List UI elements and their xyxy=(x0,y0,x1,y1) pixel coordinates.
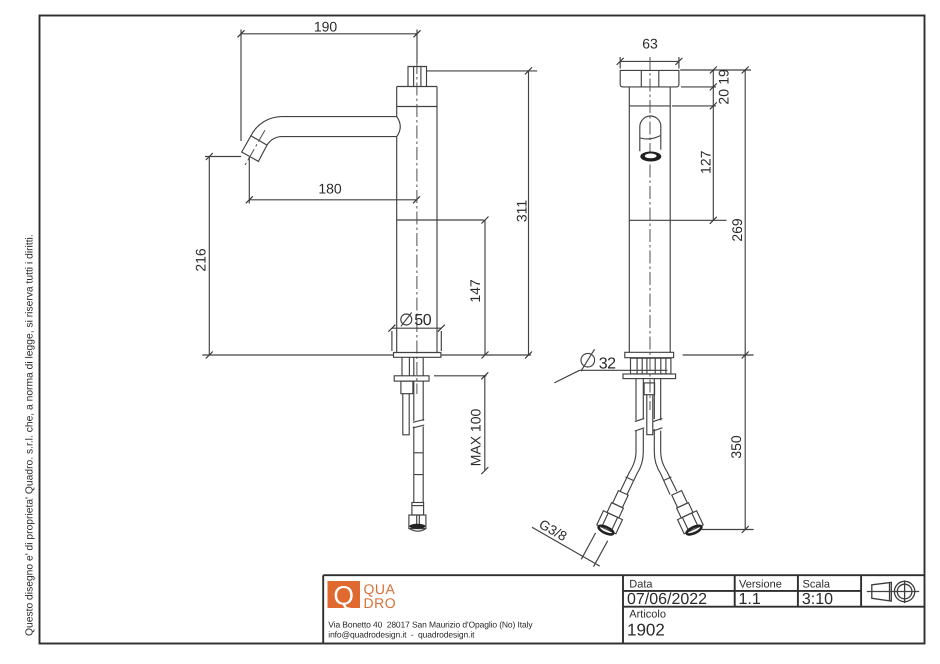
svg-text:147: 147 xyxy=(467,279,483,303)
svg-text:127: 127 xyxy=(697,150,713,174)
svg-text:Articolo: Articolo xyxy=(629,609,666,621)
svg-text:190: 190 xyxy=(314,18,338,34)
svg-text:MAX 100: MAX 100 xyxy=(468,408,484,466)
svg-text:350: 350 xyxy=(728,435,744,459)
svg-text:20: 20 xyxy=(716,89,732,105)
svg-text:Via Bonetto 40 28017 San Maur: Via Bonetto 40 28017 San Maurizio d'Opag… xyxy=(328,620,533,630)
svg-text:Scala: Scala xyxy=(803,579,831,591)
svg-text:Versione: Versione xyxy=(739,579,782,591)
svg-text:1902: 1902 xyxy=(627,621,665,640)
svg-text:Q: Q xyxy=(333,580,354,610)
svg-text:19: 19 xyxy=(716,69,732,85)
svg-text:DRO: DRO xyxy=(364,595,397,611)
svg-text:Questo disegno e' di proprieta: Questo disegno e' di proprieta' Quadro. … xyxy=(25,234,36,636)
svg-text:info@quadrodesign.it - quadr: info@quadrodesign.it - quadrodesign.it xyxy=(328,630,475,640)
svg-text:63: 63 xyxy=(642,36,658,52)
svg-text:1.1: 1.1 xyxy=(739,591,761,608)
svg-text:Data: Data xyxy=(629,579,653,591)
svg-text:269: 269 xyxy=(729,218,745,242)
svg-text:311: 311 xyxy=(514,200,530,223)
svg-text:216: 216 xyxy=(193,248,209,272)
svg-text:180: 180 xyxy=(318,181,342,197)
svg-text:3:10: 3:10 xyxy=(802,591,833,608)
svg-text:50: 50 xyxy=(414,312,431,329)
svg-text:07/06/2022: 07/06/2022 xyxy=(627,591,707,608)
